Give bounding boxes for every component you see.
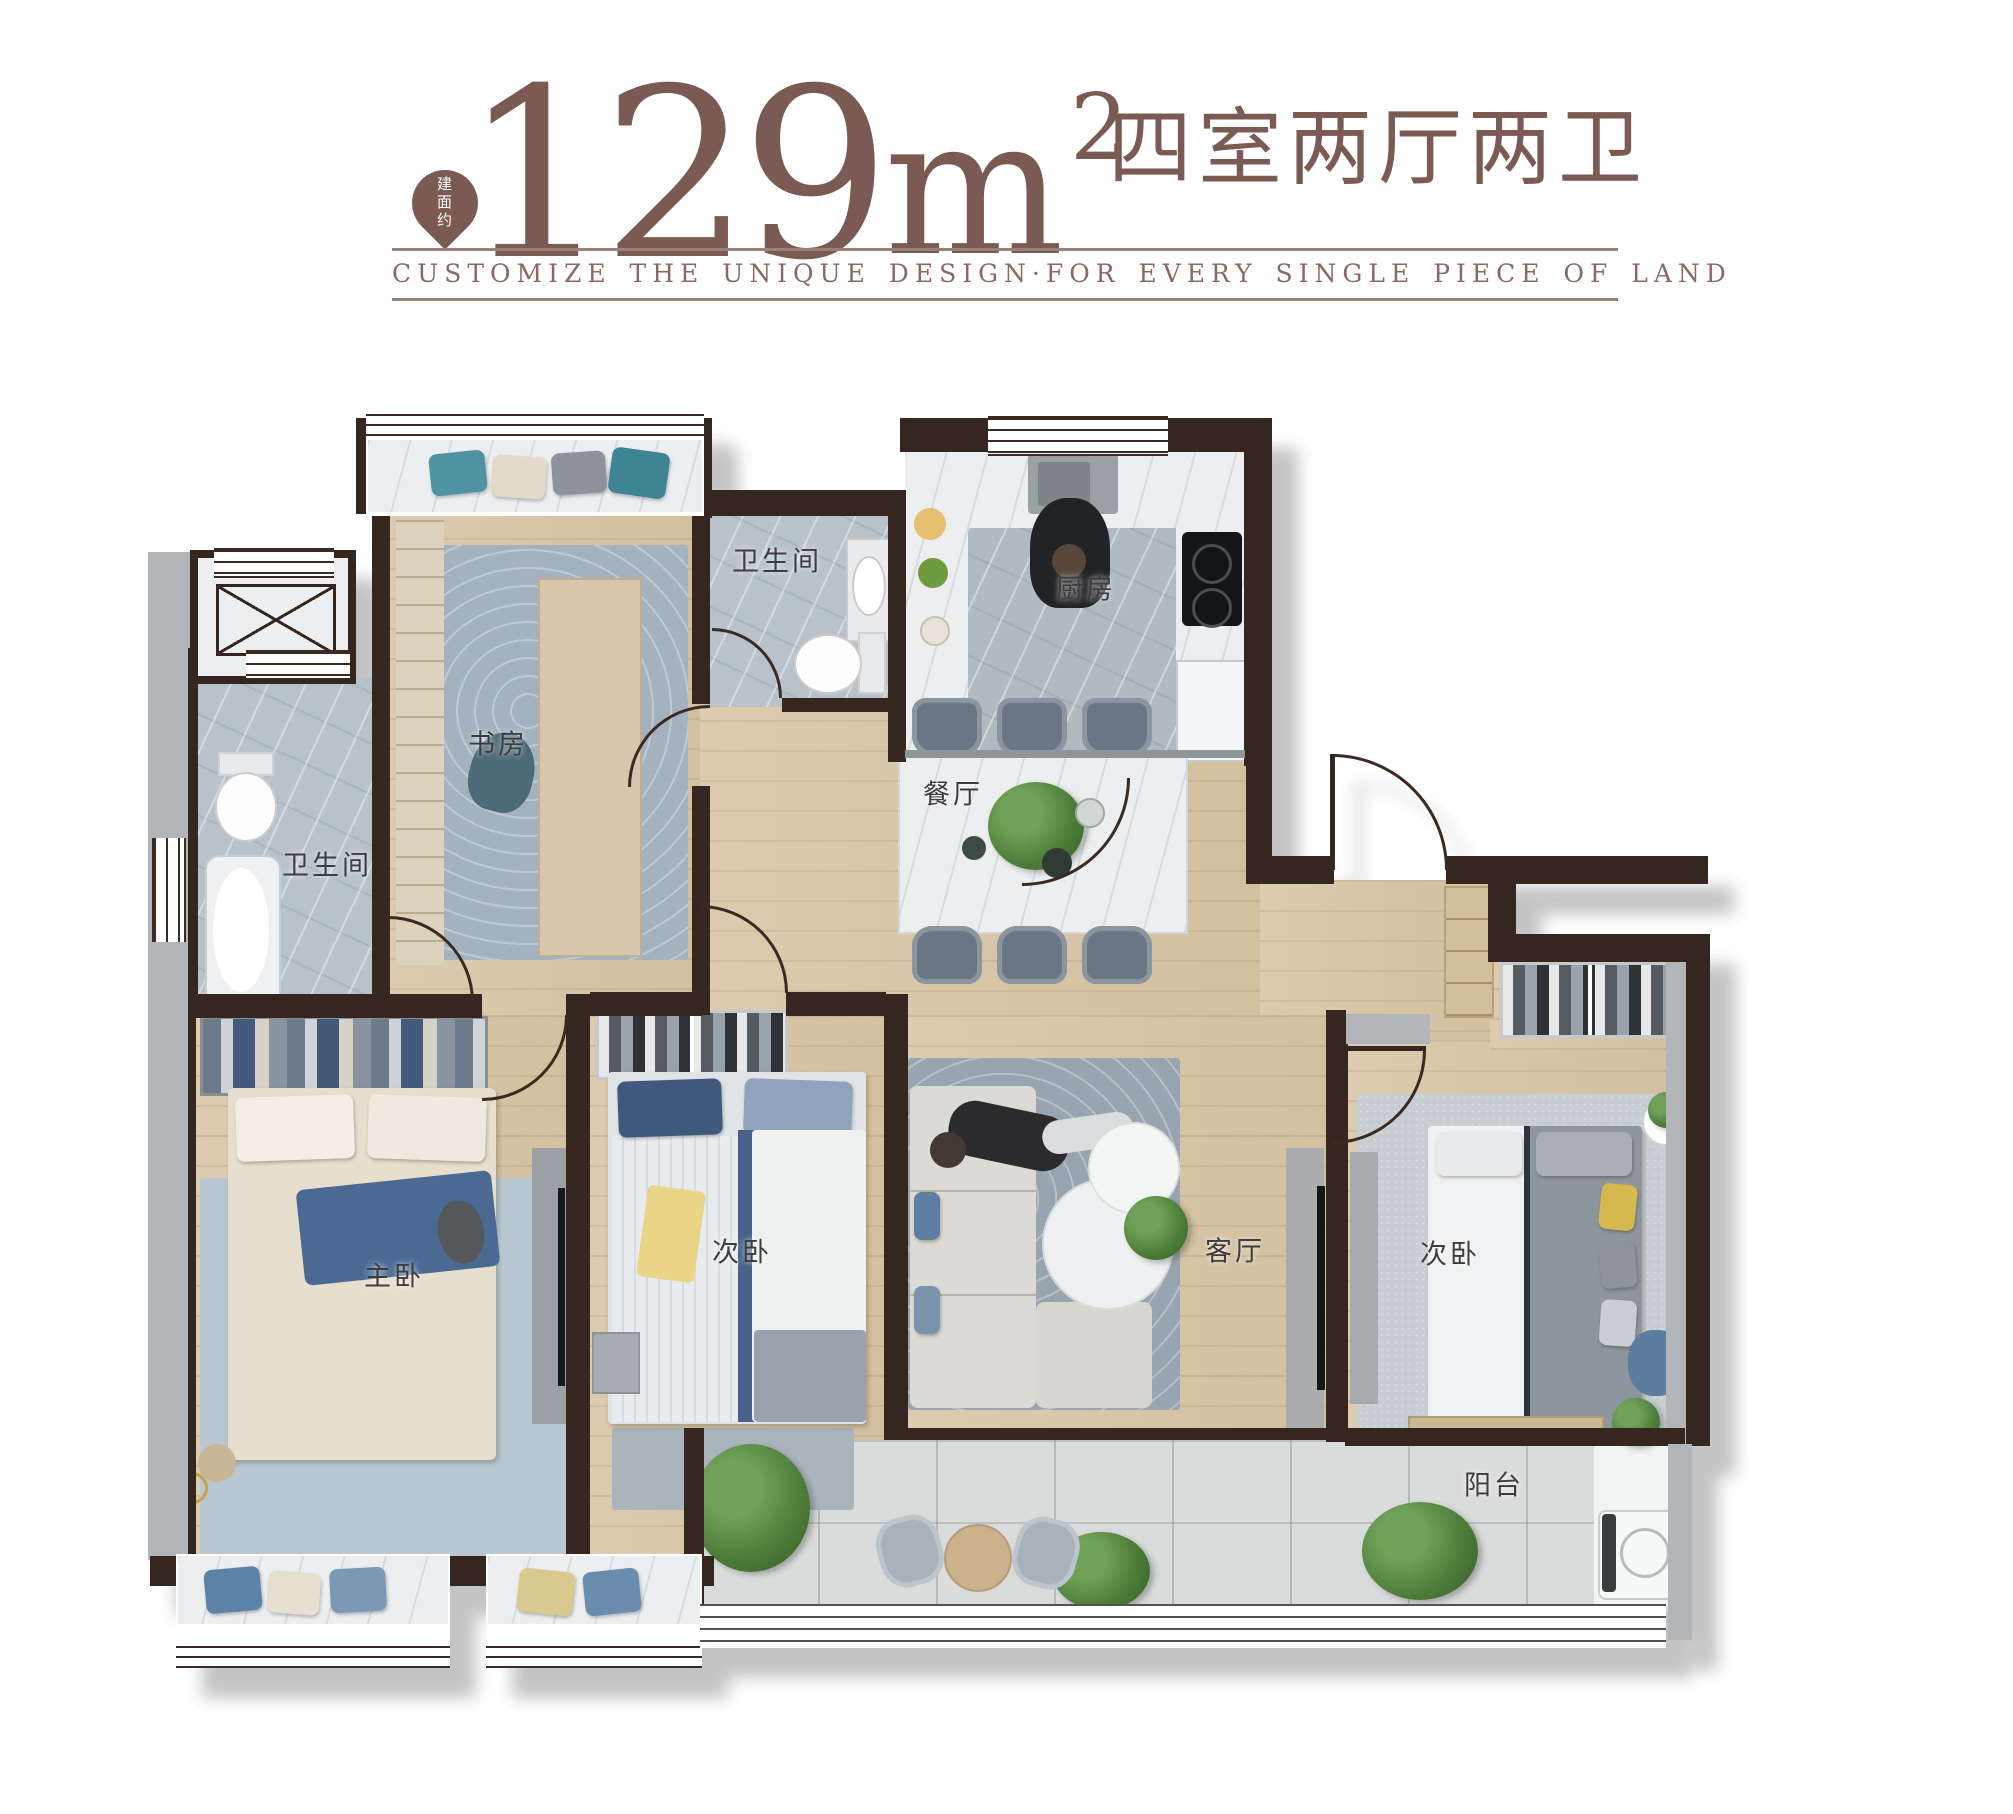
living-sofa-corner [1036,1302,1152,1408]
bedroom-middle-pillow [743,1078,853,1138]
floor-plan: 书房 卫生间 厨房 餐厅 卫生间 主卧 次卧 客厅 次卧 阳台 [0,0,2013,1814]
living-sofa-pillow [914,1286,940,1334]
room-label-kitchen: 厨房 [1056,577,1116,604]
kitchen-window [988,416,1168,456]
foyer-cabinet [1444,886,1494,1018]
bay-pillow-beige [491,454,548,500]
room-label-master: 主卧 [364,1264,424,1291]
wall [782,698,906,712]
balcony-plant [692,1444,810,1572]
living-tv [1317,1186,1325,1390]
sofa-person-head [930,1132,966,1168]
bedroom-right-seam [1524,1126,1530,1432]
room-label-bedroom-right: 次卧 [1420,1242,1480,1269]
wall [692,508,710,704]
bedroom-middle-shoe-cabinet [596,1010,788,1080]
wall [1446,856,1708,884]
entry-door-arc [1332,754,1448,870]
bedroom-right-accent-pillow [1598,1182,1639,1232]
wall-gray [1346,1014,1430,1044]
kitchen-slider-track [905,750,1245,758]
wall [1345,1428,1685,1446]
room-label-bath-left: 卫生间 [282,853,372,880]
bay-pillow-teal [607,446,671,500]
master-tv [558,1188,565,1386]
wall [786,992,886,1016]
entry-door-leaf [1330,754,1335,870]
dining-chair [912,926,982,984]
shaft-x-icon [216,584,336,656]
dining-chair [1082,698,1152,756]
wall [188,648,198,1018]
master-pillow [235,1094,355,1162]
bath-left-tub-basin [213,868,269,992]
left-exterior-band [148,552,190,1560]
study-bookshelf [396,520,444,965]
living-sofa-pillow [914,1192,940,1240]
wall [1488,934,1696,962]
bath-top-basin [852,556,886,616]
wall [900,418,990,452]
wall [590,992,702,1016]
balcony-table [944,1524,1012,1592]
master-wardrobe [200,1016,488,1096]
kitchen-fridge [1176,660,1248,762]
dining-chair [1082,926,1152,984]
bay-pillow-blue [582,1567,642,1617]
balcony-slider-track [905,1428,1345,1440]
shaft-window [246,650,350,680]
wall [1246,856,1334,884]
wall [188,1016,196,1560]
balcony-railing [700,1604,1666,1648]
wall [1246,764,1272,868]
balcony-right-gray [1668,1444,1692,1640]
wall [446,1556,490,1586]
room-label-dining: 餐厅 [923,782,983,809]
bedroom-right-wardrobe [1500,962,1680,1038]
wall [566,994,590,1584]
bath-left-toilet-bowl [215,772,277,842]
kitchen-person-head [1052,544,1086,578]
bay-pillow-blue [329,1567,387,1614]
bay-pillow-blue [203,1566,263,1615]
bedroom-middle-gray-blanket [754,1330,866,1422]
balcony-plant [1362,1502,1478,1600]
shaft-window [214,548,334,578]
room-label-bedroom-middle: 次卧 [712,1240,772,1267]
bay-pillow-yellow [516,1567,576,1617]
dining-dish [962,836,986,860]
bedroom-right-door-leaf [1332,1046,1426,1051]
room-label-living: 客厅 [1205,1239,1265,1266]
bedroom-right-pillow [1536,1132,1632,1176]
kitchen-stove [1182,532,1242,626]
room-label-bath-top: 卫生间 [732,549,822,576]
bath-top-toilet-bowl [794,634,862,694]
wall [1244,418,1272,766]
kitchen-fruit-melon [914,508,946,540]
bay-pillow-gray [551,450,608,496]
dining-chair [997,926,1067,984]
bay-pillow-teal [428,449,488,497]
room-label-balcony: 阳台 [1464,1473,1524,1500]
bedroom-right-gray-band [1666,962,1686,1444]
bay-pillow-white [267,1570,322,1616]
washing-machine-panel [1602,1514,1616,1592]
washing-machine-drum-icon [1620,1528,1670,1578]
wall [1684,934,1710,1446]
master-pillow [367,1094,487,1162]
dining-chair [997,698,1067,756]
kitchen-dish [920,616,950,646]
bath-top-toilet-tank [858,632,886,694]
kitchen-fruit-greens [918,558,948,588]
wall [690,490,906,516]
bedroom-right-pillow [1436,1132,1522,1176]
coffee-table-plant [1124,1196,1188,1260]
bedroom-middle-pillow [617,1078,723,1138]
bedroom-right-dresser [1350,1152,1378,1404]
stove-burner-icon [1192,544,1232,584]
wall [884,994,908,1440]
study-desk [538,578,642,957]
bedroom-right-accent-pillow [1598,1299,1637,1347]
floorplan-page: 建面约 129 m 2 四室两厅两卫 CUSTOMIZE THE UNIQUE … [0,0,2013,1814]
left-band-window [152,838,186,942]
wall [888,492,906,762]
stove-burner-icon [1192,588,1232,628]
bedroom-right-accent-pillow [1598,1241,1638,1290]
dining-chair [912,698,982,756]
room-label-study: 书房 [468,732,528,759]
bedroom-middle-nightstand [592,1332,640,1394]
wall [1326,1010,1346,1046]
